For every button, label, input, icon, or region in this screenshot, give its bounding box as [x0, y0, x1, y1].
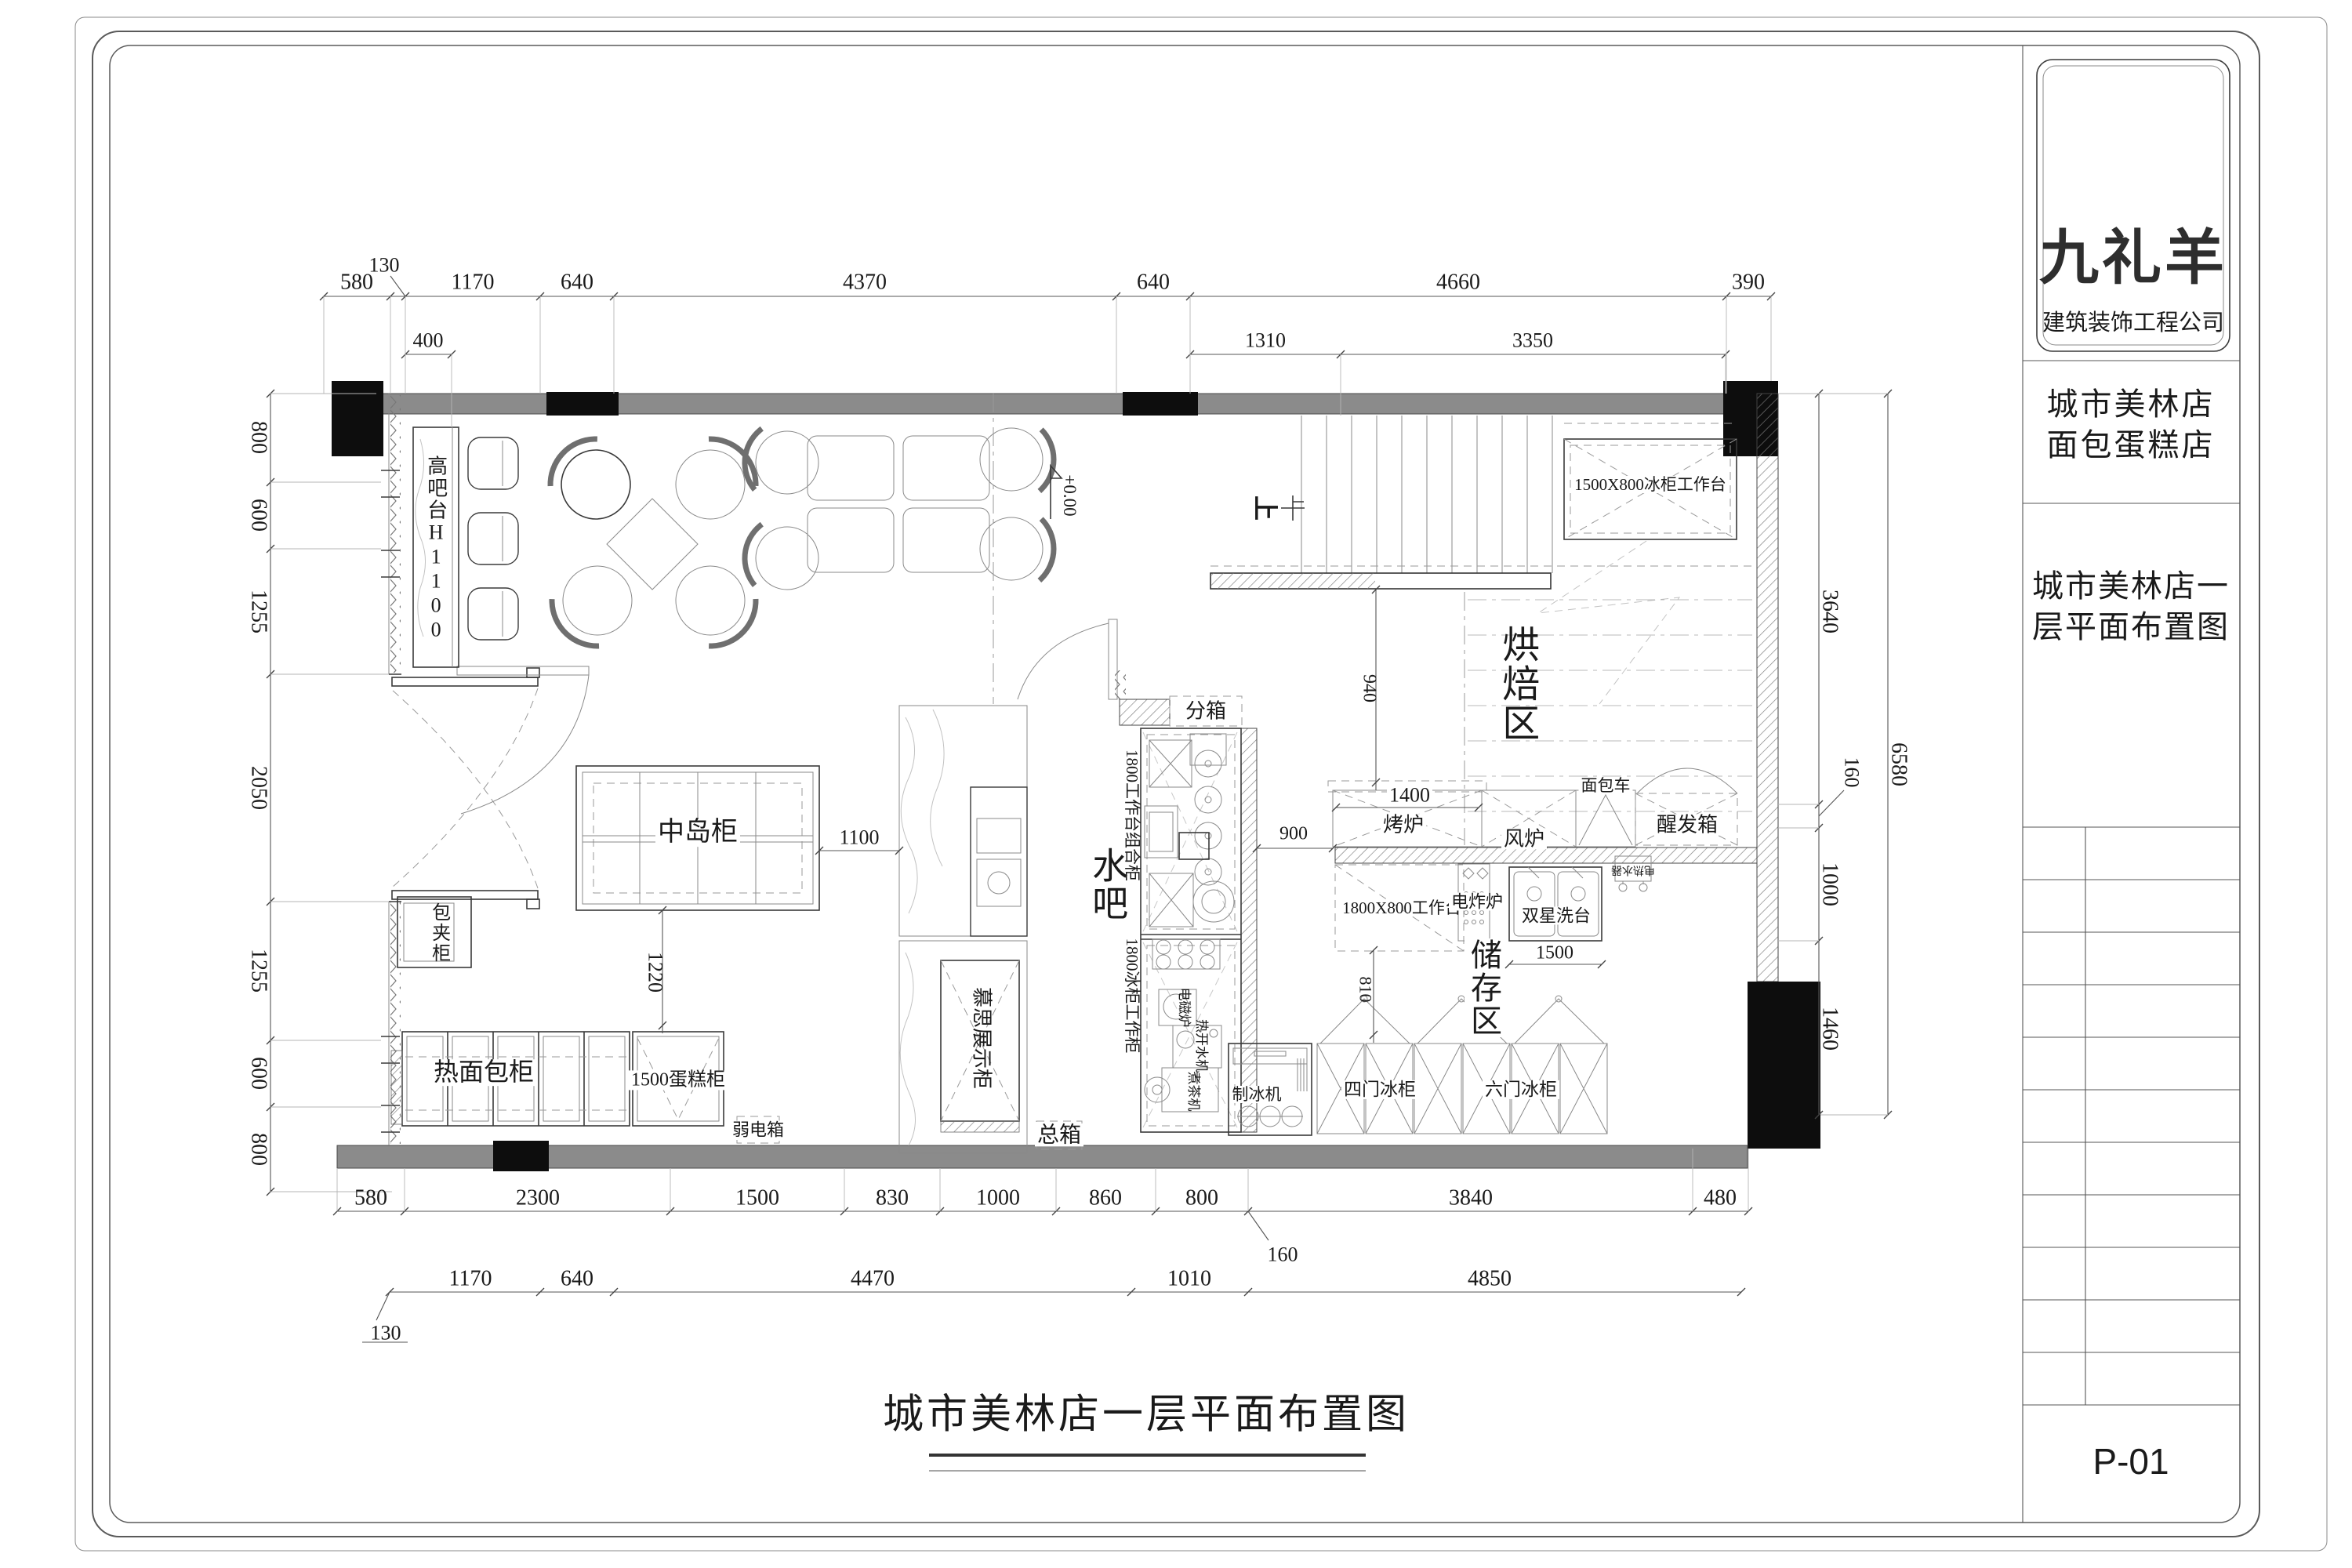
dim-bot-860: 860 [1089, 1186, 1122, 1209]
dim-top-1170: 1170 [452, 270, 495, 293]
dim-top-3350: 3350 [1512, 329, 1553, 350]
caption-underline [929, 1455, 1366, 1471]
dim-right-160: 160 [1841, 757, 1862, 788]
dim-top-640a: 640 [561, 270, 593, 293]
proofer-label: 醒发箱 [1654, 814, 1720, 835]
stair-up-label: 上 [1251, 495, 1278, 521]
dim-left-600a: 600 [247, 499, 270, 532]
drawing-caption: 城市美林店一层平面布置图 [883, 1395, 1410, 1438]
dim-bot-160: 160 [1268, 1243, 1298, 1265]
table1800-label: 1800X800工作台 [1342, 899, 1461, 916]
dim-right-1000: 1000 [1818, 862, 1841, 906]
sheet-number: P-01 [2092, 1443, 2169, 1480]
dim-sink-1500: 1500 [1536, 943, 1573, 963]
company-name: 建筑装饰工程公司 [2042, 311, 2224, 335]
dim-bot-580: 580 [354, 1186, 387, 1209]
dim-right-6580: 6580 [1887, 742, 1910, 786]
dim-right-1460: 1460 [1818, 1007, 1841, 1051]
island-label: 中岛柜 [655, 818, 740, 847]
seating-area [549, 400, 1071, 648]
freezer-worktable-label: 1800冰柜工作柜 [1123, 938, 1141, 1054]
dim-top-640b: 640 [1137, 270, 1170, 293]
water-boiler-label: 热开水机 [1194, 1019, 1208, 1073]
lv-box-label: 弱电箱 [730, 1120, 786, 1138]
project-name-line2: 面包蛋糕店 [2047, 429, 2216, 462]
sub-box-label: 分箱 [1185, 700, 1226, 721]
dim-top-400: 400 [413, 329, 444, 350]
bag-cabinet-label: 包夹柜 [428, 902, 448, 964]
dim-left-800b: 800 [247, 1133, 270, 1166]
dimension-lines [267, 276, 1892, 1342]
dim-right-3640: 3640 [1818, 590, 1841, 633]
ice-machine-label: 制冰机 [1230, 1086, 1284, 1103]
dim-bot-4470: 4470 [851, 1267, 895, 1290]
freezer-table-label: 1500X800冰柜工作台 [1572, 476, 1729, 493]
high-bar-label: 高吧台H1100 [425, 456, 446, 643]
dim-bake-900: 900 [1279, 824, 1308, 844]
dim-island-1100: 1100 [839, 826, 879, 848]
fridge6-label: 六门冰柜 [1483, 1080, 1559, 1099]
water-bar [1141, 696, 1242, 1132]
dim-bot-4850: 4850 [1468, 1267, 1512, 1290]
hot-bread-label: 热面包柜 [431, 1059, 536, 1086]
column-mousse-display [899, 394, 1027, 1153]
dim-left-600b: 600 [247, 1057, 270, 1090]
induction-label: 电磁炉 [1177, 988, 1191, 1028]
dim-bot-3840: 3840 [1449, 1186, 1493, 1209]
fryer-label: 电炸炉 [1449, 892, 1505, 910]
sheet-title-line2: 层平面布置图 [2032, 611, 2230, 644]
dim-bot-2300: 2300 [516, 1186, 560, 1209]
tea-machine-label: 煮茶机 [1186, 1072, 1200, 1112]
dim-bot-130: 130 [371, 1322, 401, 1343]
storage-zone-label: 储存区 [1465, 938, 1502, 1037]
dim-bot-480: 480 [1704, 1186, 1737, 1209]
dim-storage-810: 810 [1356, 977, 1374, 1003]
combo-worktable-label: 1800工作台组合柜 [1123, 750, 1141, 881]
dim-left-1255b: 1255 [247, 949, 270, 993]
dim-bot-800: 800 [1185, 1186, 1218, 1209]
baking-zone-label: 烘焙区 [1497, 625, 1536, 742]
bread-cart-label: 面包车 [1579, 777, 1633, 794]
waterbar-zone-label: 水吧 [1088, 847, 1126, 922]
dim-top-1310: 1310 [1245, 329, 1286, 350]
main-box-label: 总箱 [1035, 1123, 1083, 1146]
level-label: +0.00 [1060, 474, 1079, 516]
dim-bot-1500: 1500 [735, 1186, 779, 1209]
dim-top-4660: 4660 [1436, 270, 1480, 293]
dim-bot-1010: 1010 [1167, 1267, 1211, 1290]
sheet-frame [75, 17, 2327, 1551]
floor-plan-drawing [0, 0, 2352, 1568]
project-name-line1: 城市美林店 [2047, 388, 2216, 421]
dim-bot-830: 830 [876, 1186, 909, 1209]
dim-left-800a: 800 [247, 421, 270, 454]
dim-bot-640: 640 [561, 1267, 593, 1290]
sheet-title-line1: 城市美林店一 [2032, 570, 2230, 603]
dim-bot-1000: 1000 [976, 1186, 1020, 1209]
fridge4-label: 四门冰柜 [1341, 1080, 1418, 1099]
mousse-display-label: 慕思展示柜 [971, 987, 992, 1089]
dim-bot-1170: 1170 [449, 1267, 492, 1290]
dim-top-4370: 4370 [843, 270, 887, 293]
double-sink-label: 双星洗台 [1519, 906, 1593, 924]
company-logo: 九礼羊 [2039, 227, 2227, 290]
dim-top-130: 130 [369, 254, 400, 275]
cake-cabinet-label: 1500蛋糕柜 [629, 1070, 728, 1090]
oven-label: 烤炉 [1381, 814, 1426, 835]
dim-left-1255a: 1255 [247, 590, 270, 633]
fan-oven-label: 风炉 [1501, 828, 1547, 849]
dim-bake-940: 940 [1359, 674, 1378, 702]
dim-left-2050: 2050 [247, 766, 270, 810]
dim-top-390: 390 [1732, 270, 1765, 293]
floor-plan-sheet: 580 130 1170 640 4370 640 4660 390 400 1… [0, 0, 2352, 1568]
dim-oven-1400: 1400 [1387, 784, 1432, 805]
fridges [1229, 996, 1607, 1135]
dim-island-1220: 1220 [644, 952, 666, 993]
water-heater-label: 电热水器 [1611, 863, 1655, 875]
